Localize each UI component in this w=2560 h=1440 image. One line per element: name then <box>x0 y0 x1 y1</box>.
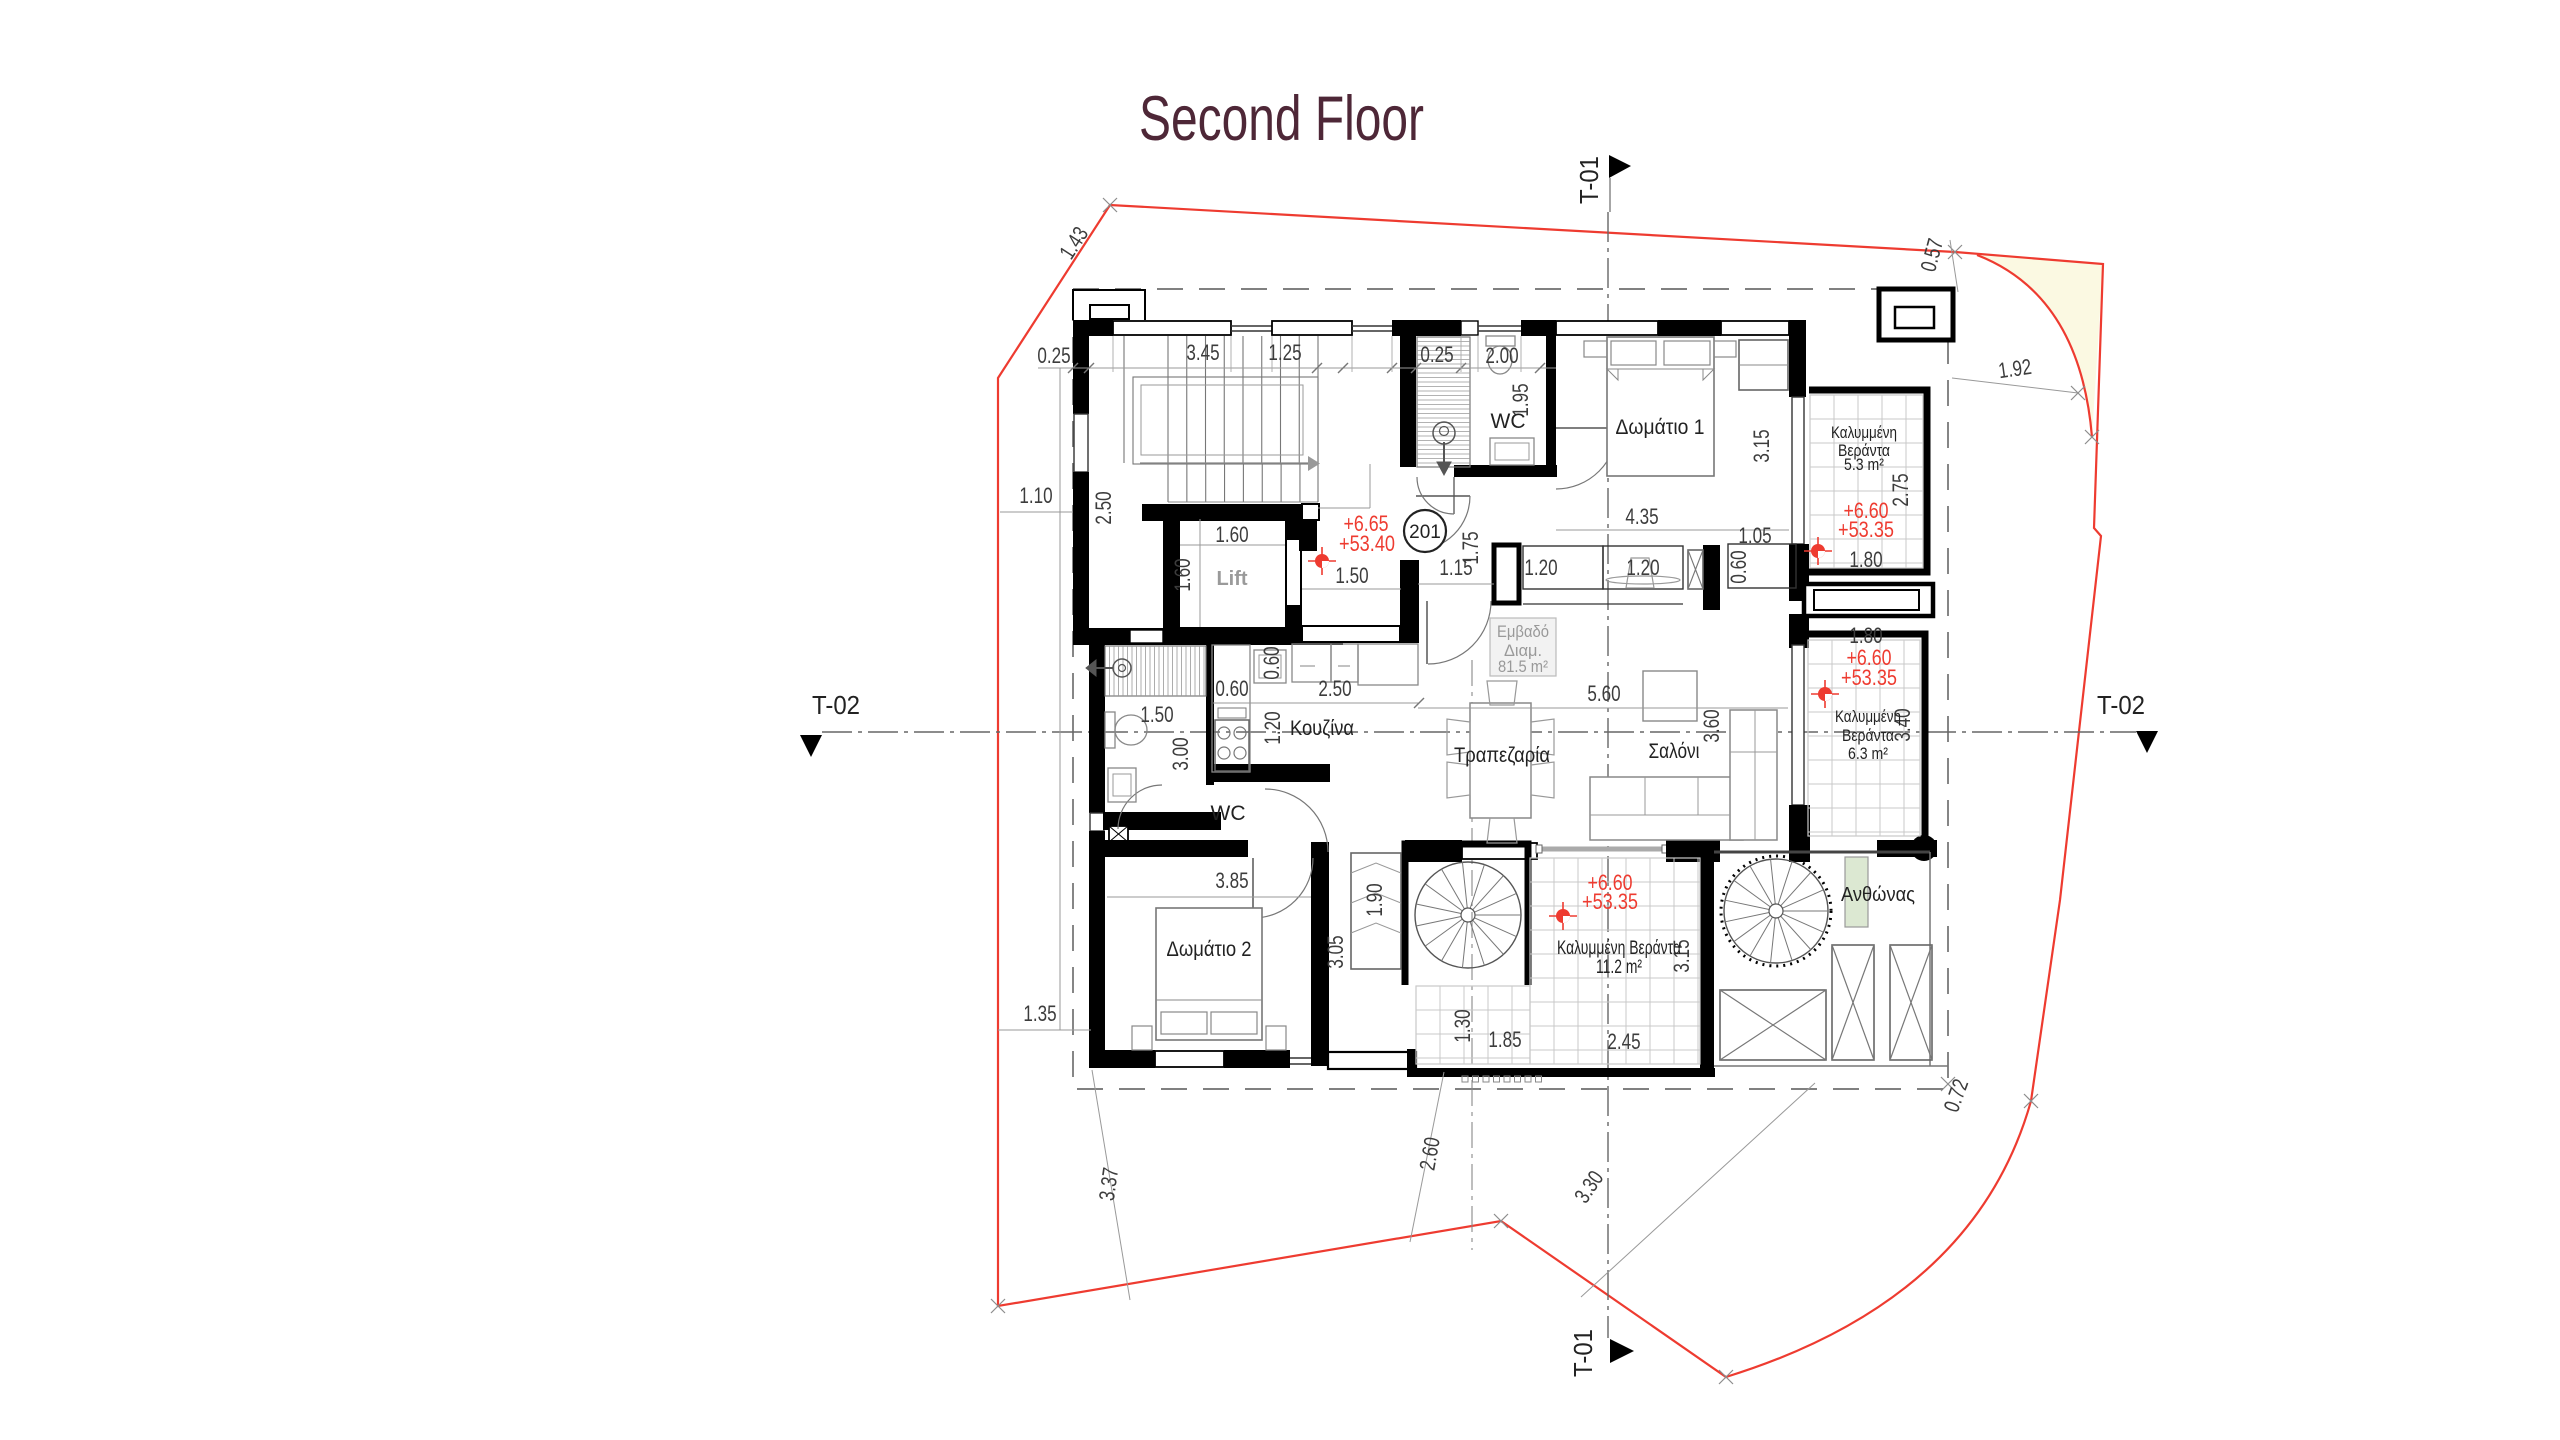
svg-text:5.60: 5.60 <box>1587 681 1620 706</box>
svg-text:2.50: 2.50 <box>1091 491 1116 524</box>
svg-text:2.50: 2.50 <box>1318 676 1351 701</box>
svg-text:WC: WC <box>1211 802 1246 825</box>
svg-text:Τραπεζαρία: Τραπεζαρία <box>1454 744 1550 767</box>
svg-text:Κουζίνα: Κουζίνα <box>1290 717 1354 740</box>
svg-text:1.50: 1.50 <box>1335 563 1368 588</box>
svg-text:Εμβαδό: Εμβαδό <box>1497 622 1549 641</box>
svg-text:Σαλόνι: Σαλόνι <box>1649 740 1700 763</box>
svg-text:Βεράντα: Βεράντα <box>1842 726 1894 745</box>
svg-text:1.60: 1.60 <box>1170 558 1195 591</box>
svg-text:1.90: 1.90 <box>1362 883 1387 916</box>
svg-text:1.20: 1.20 <box>1626 555 1659 580</box>
svg-text:Ανθώνας: Ανθώνας <box>1841 884 1915 906</box>
svg-text:11.2 m²: 11.2 m² <box>1596 957 1642 978</box>
svg-text:Δωμάτιο 1: Δωμάτιο 1 <box>1616 416 1705 439</box>
svg-text:3.85: 3.85 <box>1215 868 1248 893</box>
svg-text:Δωμάτιο 2: Δωμάτιο 2 <box>1167 938 1252 961</box>
svg-text:0.60: 0.60 <box>1215 676 1248 701</box>
svg-text:5.3 m²: 5.3 m² <box>1844 455 1884 474</box>
svg-text:0.25: 0.25 <box>1420 342 1453 367</box>
svg-text:1.60: 1.60 <box>1215 522 1248 547</box>
svg-text:T-02: T-02 <box>2097 690 2145 720</box>
svg-text:1.85: 1.85 <box>1488 1027 1521 1052</box>
svg-text:201: 201 <box>1409 522 1441 543</box>
svg-text:1.20: 1.20 <box>1260 711 1285 744</box>
svg-text:2.75: 2.75 <box>1888 473 1913 506</box>
svg-text:3.45: 3.45 <box>1186 340 1219 365</box>
svg-text:3.37: 3.37 <box>1094 1166 1123 1202</box>
svg-text:+53.35: +53.35 <box>1582 889 1638 914</box>
svg-text:3.05: 3.05 <box>1323 935 1348 968</box>
svg-text:WC: WC <box>1491 410 1526 433</box>
svg-text:3.00: 3.00 <box>1168 737 1193 770</box>
svg-text:0.60: 0.60 <box>1726 550 1751 583</box>
svg-text:+53.40: +53.40 <box>1339 531 1395 556</box>
svg-text:1.20: 1.20 <box>1524 555 1557 580</box>
svg-text:1.25: 1.25 <box>1268 340 1301 365</box>
svg-text:3.15: 3.15 <box>1749 429 1774 462</box>
svg-text:T-02: T-02 <box>812 690 860 720</box>
svg-text:0.25: 0.25 <box>1037 343 1070 368</box>
svg-text:0.60: 0.60 <box>1259 646 1284 679</box>
svg-text:T-01: T-01 <box>1574 156 1604 204</box>
svg-text:+53.35: +53.35 <box>1841 665 1897 690</box>
svg-text:Lift: Lift <box>1216 568 1247 590</box>
svg-text:3.60: 3.60 <box>1699 709 1724 742</box>
svg-text:1.92: 1.92 <box>1997 354 2033 383</box>
svg-text:1.05: 1.05 <box>1738 523 1771 548</box>
svg-text:4.35: 4.35 <box>1625 504 1658 529</box>
svg-text:1.50: 1.50 <box>1140 702 1173 727</box>
svg-text:Καλυμμένη: Καλυμμένη <box>1835 707 1901 726</box>
svg-text:6.3 m²: 6.3 m² <box>1848 744 1888 763</box>
svg-text:1.75: 1.75 <box>1458 531 1483 564</box>
svg-text:Καλυμμένη: Καλυμμένη <box>1831 423 1897 442</box>
svg-text:Second Floor: Second Floor <box>1139 84 1424 154</box>
svg-text:1.30: 1.30 <box>1450 1009 1475 1042</box>
svg-text:2.45: 2.45 <box>1607 1029 1640 1054</box>
svg-text:2.00: 2.00 <box>1485 343 1518 368</box>
svg-text:+53.35: +53.35 <box>1838 517 1894 542</box>
svg-text:T-01: T-01 <box>1568 1329 1598 1377</box>
svg-text:Καλυμμένη Βεράντα: Καλυμμένη Βεράντα <box>1557 938 1681 959</box>
svg-text:81.5 m²: 81.5 m² <box>1498 657 1548 676</box>
svg-text:1.80: 1.80 <box>1849 547 1882 572</box>
svg-text:1.35: 1.35 <box>1023 1001 1056 1026</box>
svg-text:1.10: 1.10 <box>1019 483 1052 508</box>
